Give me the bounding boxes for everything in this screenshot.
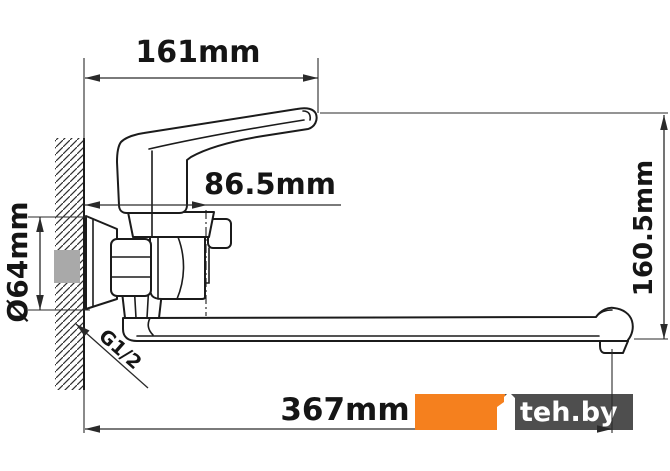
connection-hex-nut [111,239,151,296]
wall-section [54,138,84,390]
cartridge-collar [128,212,214,237]
faucet-dimensional-drawing: teh.by [0,0,670,471]
arrowhead-left [85,425,100,433]
faucet-outline [86,108,633,353]
dimension-161: 161mm [85,35,318,113]
dimension-label-160-5: 160.5mm [629,160,659,296]
dimension-label-367: 367mm [280,392,409,428]
spout-aerator [600,341,628,353]
dimension-label-64: Ø64mm [1,201,34,322]
watermark-site-label: teh.by [520,397,618,428]
dimension-160-5: 160.5mm [320,113,668,339]
technical-drawing-page: teh.by [0,0,670,471]
dimension-label-161: 161mm [135,35,260,70]
in-wall-pipe [54,250,80,283]
watermark-badge: teh.by [415,392,633,430]
watermark-orange-block [415,394,506,430]
dimension-label-86-5: 86.5mm [204,167,336,201]
